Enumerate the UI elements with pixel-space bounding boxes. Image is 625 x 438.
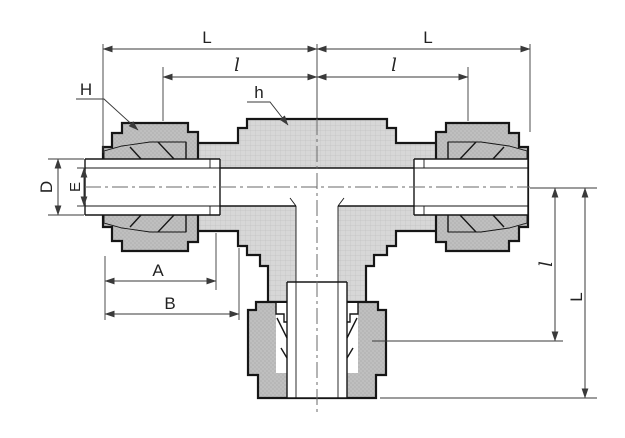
- dim-label-A: A: [152, 261, 164, 280]
- leader-label-h: h: [254, 83, 263, 102]
- dim-label-B: B: [164, 294, 175, 313]
- dim-label-L-top-right: L: [423, 28, 432, 47]
- dim-label-L-top-left: L: [202, 28, 211, 47]
- dim-label-l-top-right: l: [391, 55, 397, 76]
- dim-label-L-side: L: [567, 292, 586, 301]
- dim-label-E: E: [67, 182, 84, 192]
- dim-label-l-top-left: l: [234, 55, 240, 76]
- dim-label-l-side: l: [536, 261, 557, 267]
- branch-bore: [296, 206, 338, 284]
- leader-label-H: H: [80, 80, 92, 99]
- technical-drawing: L L l l H h D E A B l L: [0, 0, 625, 438]
- tee-fitting-drawing: L L l l H h D E A B l L: [0, 0, 625, 438]
- dim-label-D: D: [37, 181, 56, 193]
